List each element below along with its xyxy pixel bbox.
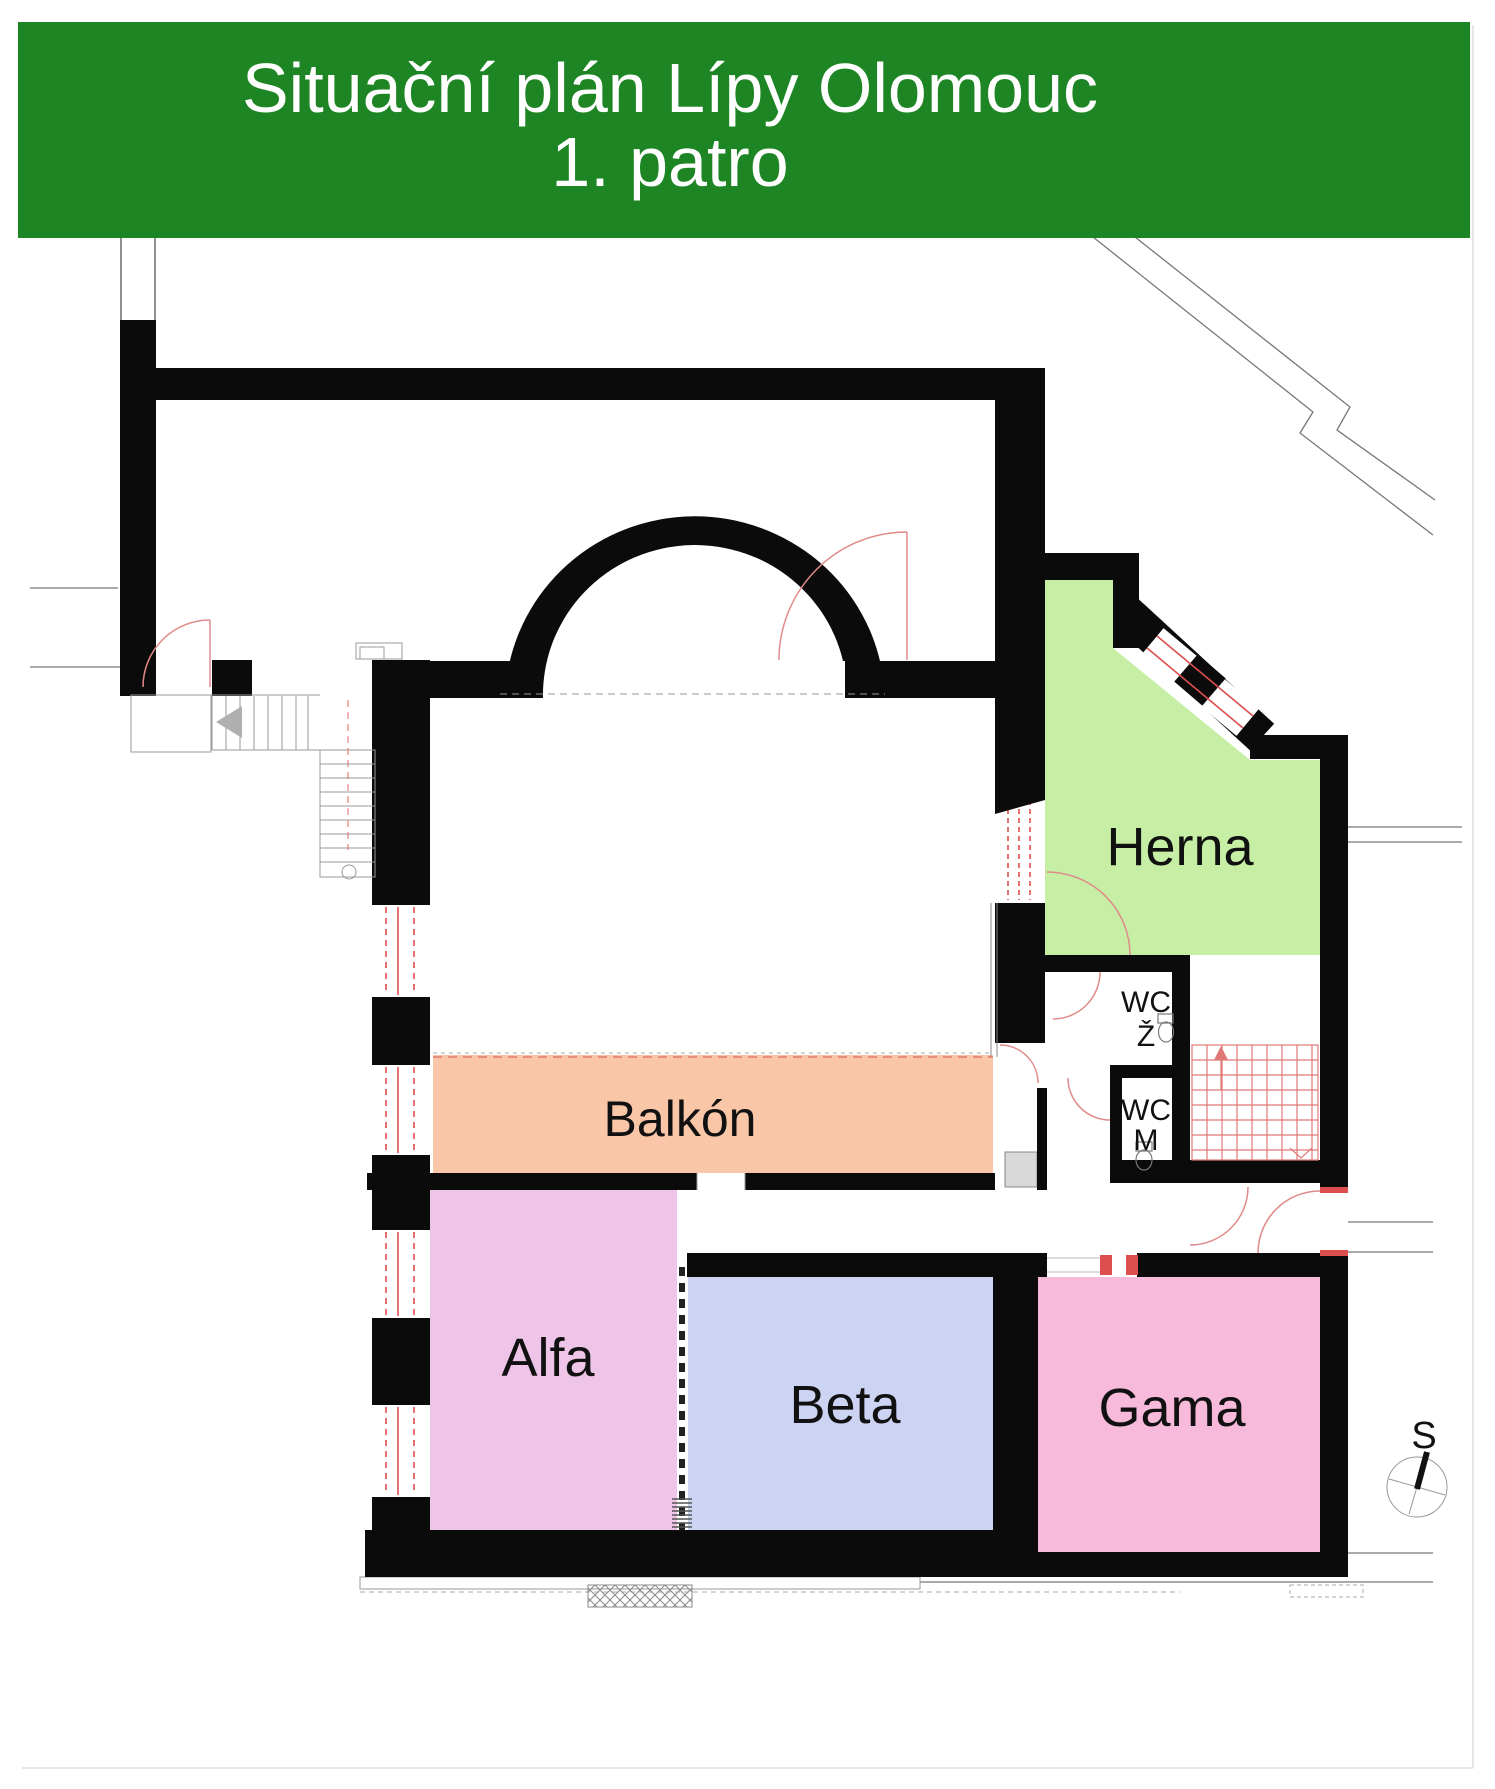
wall-wc-divider [1110,1065,1177,1078]
door-east-exit [1258,1191,1320,1253]
label-gama: Gama [1098,1378,1246,1438]
wall-apse-arch [505,516,880,698]
shaft-area [1005,1152,1037,1187]
wall-south-gama [1038,1552,1348,1577]
wall-northwest-vertical [120,320,156,696]
interior-stairwell [1192,1045,1318,1160]
stair-direction-arrow [216,706,242,738]
label-herna: Herna [1106,817,1254,877]
label-wc-men-1: WC [1121,1094,1171,1127]
stair-up-arrow [1214,1046,1228,1060]
wall-wc-north [1037,955,1190,972]
gama-door-jambs [1100,1255,1138,1275]
west-window-2 [386,1067,414,1153]
label-beta: Beta [789,1375,901,1435]
wall-herna-north [1045,553,1115,580]
door-wc-women [1053,972,1100,1019]
wall-hall-east [995,400,1045,792]
label-wc-women-1: WC [1121,986,1171,1019]
floor-plan-page: Herna Balkón Alfa Beta Gama WC Ž WC M S … [0,0,1495,1789]
title-banner: Situační plán Lípy Olomouc 1. patro [18,22,1470,238]
entrance-grate [588,1585,692,1607]
wall-south [365,1530,1038,1577]
wall-north [156,368,1045,400]
label-wc-women-2: Ž [1137,1020,1155,1053]
compass: S [1387,1415,1447,1517]
door-corridor-west [1000,1045,1038,1083]
wall-west-2 [372,997,430,1065]
west-window-1 [386,907,414,995]
west-window-3 [386,1232,414,1316]
room-herna-area [1045,578,1320,955]
label-wc-men-2: M [1134,1124,1159,1157]
wall-exterior-pillar [212,660,252,696]
wall-west-1 [372,660,430,905]
banner-title-line2: 1. patro [551,123,788,201]
wall-beta-gama-divider [993,1277,1038,1532]
label-balkon: Balkón [604,1091,757,1147]
exterior-staircase [131,695,375,879]
wall-west-4 [372,1318,430,1405]
wall-gama-north [1137,1253,1320,1277]
wall-beta-north [687,1253,1047,1277]
wall-balkon-south-right [745,1173,995,1190]
east-exit-opening [1320,1187,1348,1256]
compass-north-label: S [1411,1415,1436,1457]
door-wc-men [1068,1078,1110,1120]
banner-title-line1: Situační plán Lípy Olomouc [242,49,1098,127]
herna-west-window [1008,800,1030,900]
wall-stair-south [1110,1160,1320,1183]
wall-west-5 [372,1497,430,1532]
floor-plan-canvas: Herna Balkón Alfa Beta Gama WC Ž WC M S … [0,0,1495,1789]
wall-west-3 [372,1155,430,1230]
west-window-4 [386,1407,414,1495]
wall-east [1320,759,1348,1577]
door-corridor-east [1190,1187,1248,1245]
label-alfa: Alfa [501,1328,595,1388]
